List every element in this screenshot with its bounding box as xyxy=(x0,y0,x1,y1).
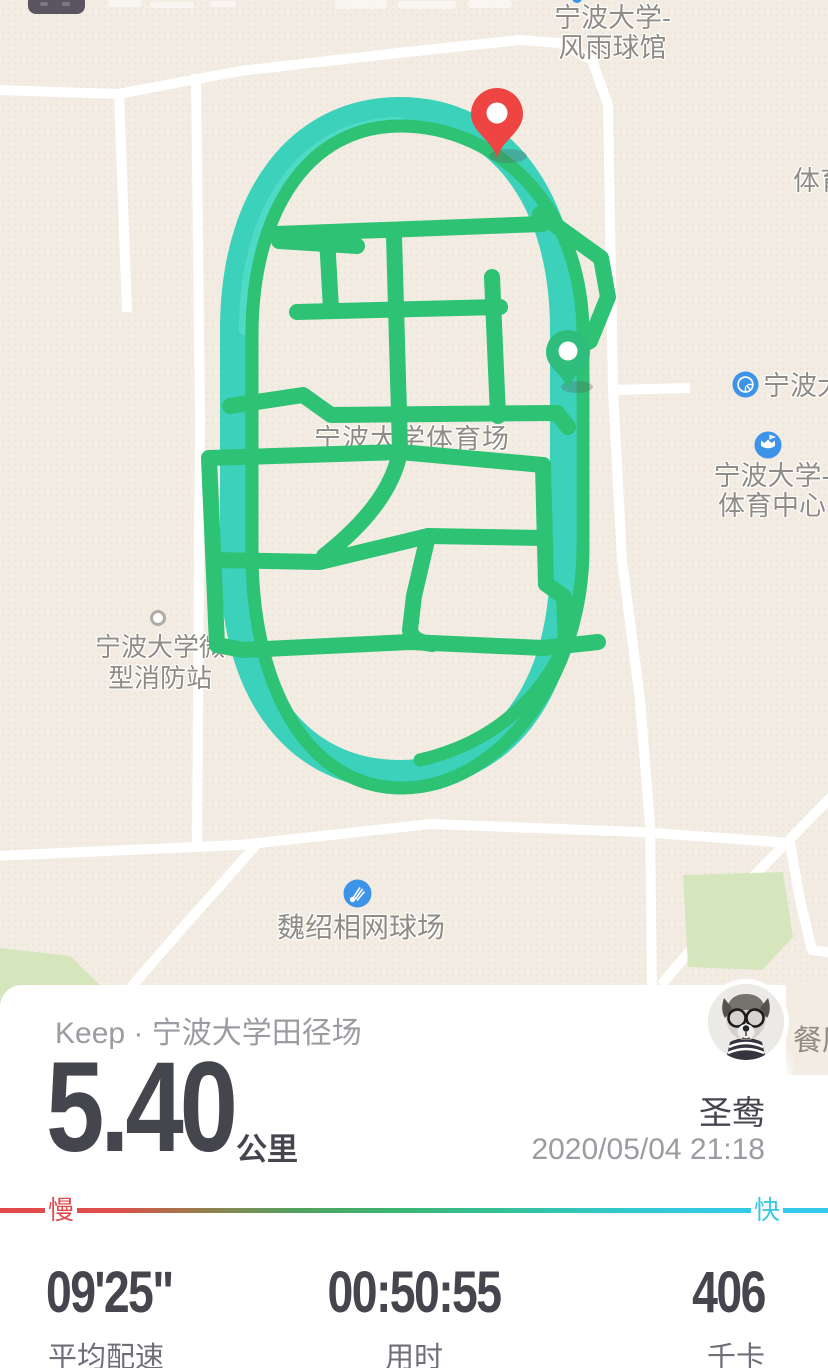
calories-value: 406 xyxy=(692,1262,765,1324)
distance-unit: 公里 xyxy=(236,1124,298,1169)
user-name: 圣鸯 xyxy=(699,1086,765,1134)
run-share-screen: 宁波大学- 风雨球馆 体育 宁波大 宁波大学- 体育中心 宁波大学体育场 宁波大… xyxy=(0,0,828,1368)
avatar[interactable] xyxy=(703,979,789,1065)
start-pin-dot xyxy=(559,342,578,361)
pace-gradient-bar xyxy=(0,1208,828,1213)
finish-pin-dot xyxy=(487,103,508,124)
duration-value: 00:50:55 xyxy=(328,1262,501,1324)
avatar-dog-image xyxy=(708,984,784,1060)
avg-pace-label: 平均配速 xyxy=(48,1334,164,1368)
gps-route xyxy=(209,112,608,788)
pace-fast-label: 快 xyxy=(751,1194,783,1226)
map-remnant-patch: 餐厅 xyxy=(786,985,828,1075)
pace-slow-label: 慢 xyxy=(45,1194,77,1226)
calories-label: 千卡 xyxy=(707,1334,765,1368)
poi-label-restaurant: 餐厅 xyxy=(793,1017,828,1059)
run-datetime: 2020/05/04 21:18 xyxy=(531,1133,765,1167)
distance-value: 5.40 xyxy=(46,1048,234,1168)
avg-pace-value: 09'25" xyxy=(46,1262,173,1324)
duration-label: 用时 xyxy=(385,1334,443,1368)
